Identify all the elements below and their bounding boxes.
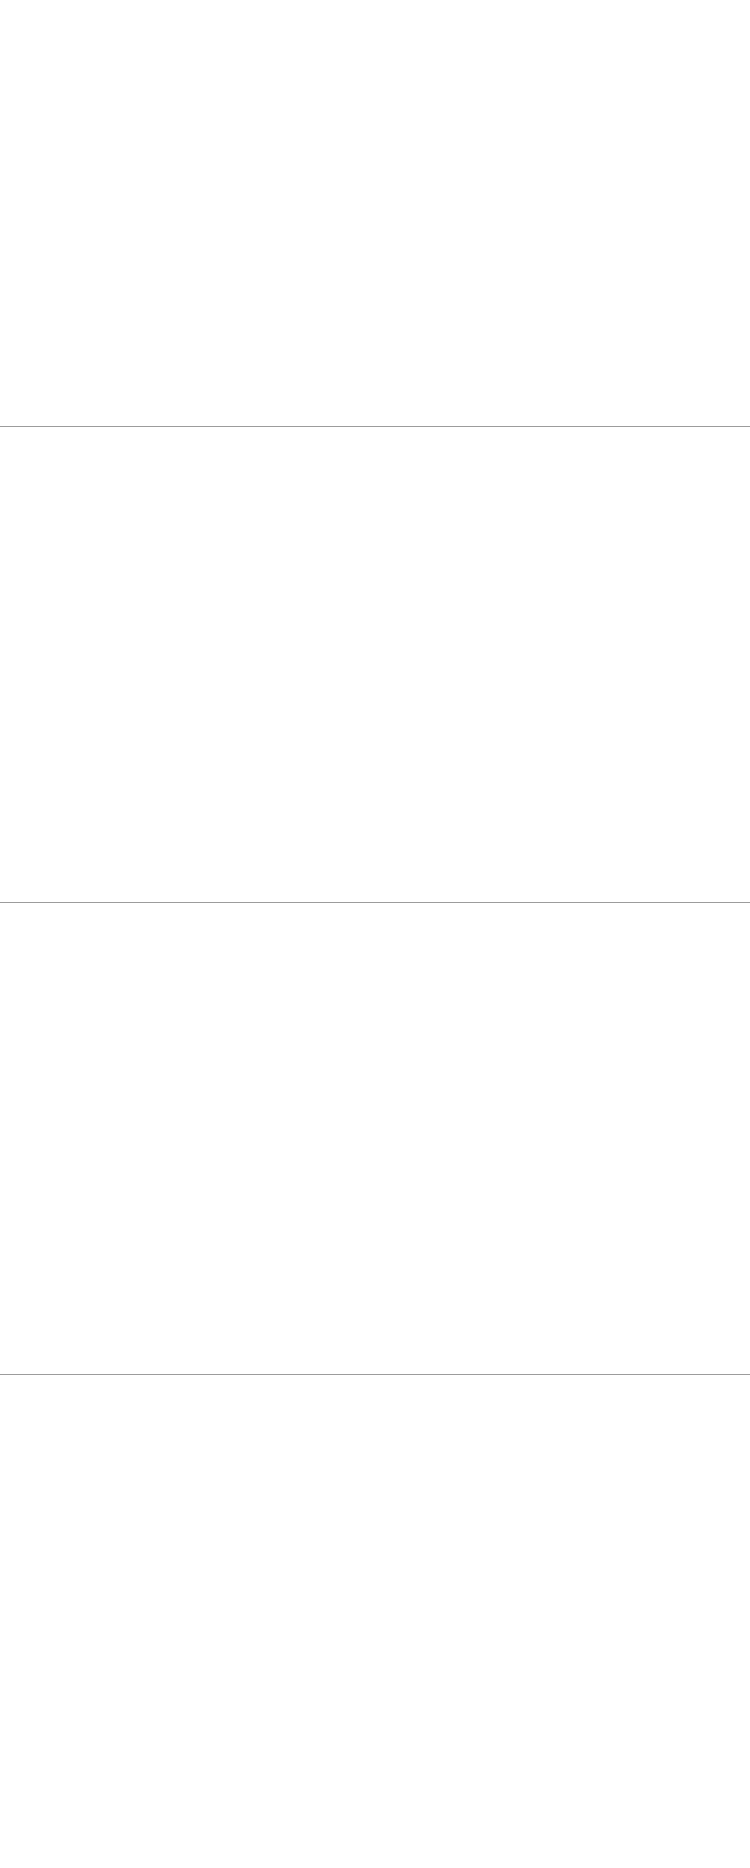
section-1 xyxy=(0,0,750,427)
section-4 xyxy=(0,1375,750,1868)
spec-sheet xyxy=(0,0,750,1868)
section-2 xyxy=(0,427,750,903)
section-title xyxy=(8,1389,15,1406)
section-title xyxy=(8,917,15,934)
section-title xyxy=(8,441,15,458)
section-title xyxy=(8,8,15,25)
section-3 xyxy=(0,903,750,1375)
